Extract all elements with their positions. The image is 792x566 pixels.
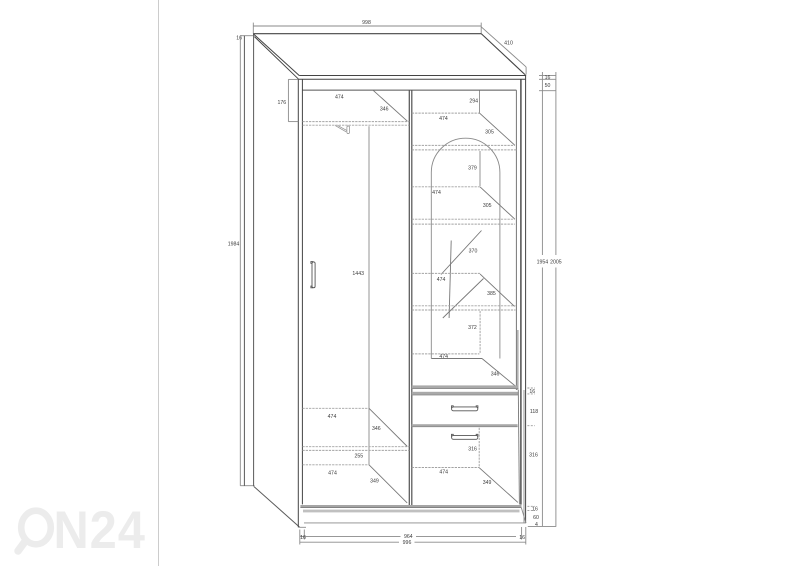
svg-text:2005: 2005 xyxy=(550,259,562,265)
svg-text:16: 16 xyxy=(529,389,535,395)
svg-text:316: 316 xyxy=(529,453,538,459)
svg-text:474: 474 xyxy=(439,470,448,476)
svg-text:N24: N24 xyxy=(54,500,146,559)
svg-text:305: 305 xyxy=(485,130,494,136)
svg-text:474: 474 xyxy=(439,354,448,360)
svg-text:294: 294 xyxy=(469,99,478,105)
svg-text:385: 385 xyxy=(487,291,496,297)
svg-text:349: 349 xyxy=(370,479,379,485)
svg-text:118: 118 xyxy=(530,409,538,415)
svg-text:16: 16 xyxy=(532,507,538,513)
svg-text:379: 379 xyxy=(468,166,477,172)
svg-text:176: 176 xyxy=(277,100,286,106)
svg-text:372: 372 xyxy=(468,325,477,331)
svg-text:305: 305 xyxy=(483,203,492,209)
svg-text:474: 474 xyxy=(328,471,337,477)
svg-text:996: 996 xyxy=(403,540,412,546)
svg-text:410: 410 xyxy=(504,41,513,47)
svg-text:60: 60 xyxy=(533,515,539,521)
svg-text:474: 474 xyxy=(437,277,446,283)
svg-text:346: 346 xyxy=(380,106,389,112)
svg-text:998: 998 xyxy=(362,20,371,26)
svg-text:349: 349 xyxy=(483,480,492,486)
svg-text:1443: 1443 xyxy=(352,271,364,277)
svg-text:4: 4 xyxy=(535,522,538,528)
svg-text:16: 16 xyxy=(236,36,242,42)
svg-text:346: 346 xyxy=(372,426,381,432)
svg-text:16: 16 xyxy=(519,535,525,541)
svg-text:1954: 1954 xyxy=(537,259,549,265)
svg-text:255: 255 xyxy=(354,454,363,460)
svg-text:16: 16 xyxy=(545,75,551,81)
svg-text:346: 346 xyxy=(491,372,500,378)
svg-text:370: 370 xyxy=(469,249,478,255)
svg-text:1984: 1984 xyxy=(228,242,240,248)
svg-text:474: 474 xyxy=(335,94,344,100)
svg-text:474: 474 xyxy=(439,116,448,122)
svg-text:50: 50 xyxy=(545,83,551,89)
svg-text:474: 474 xyxy=(328,414,337,420)
svg-text:16: 16 xyxy=(300,535,306,541)
svg-text:474: 474 xyxy=(432,190,441,196)
svg-text:316: 316 xyxy=(468,447,477,453)
